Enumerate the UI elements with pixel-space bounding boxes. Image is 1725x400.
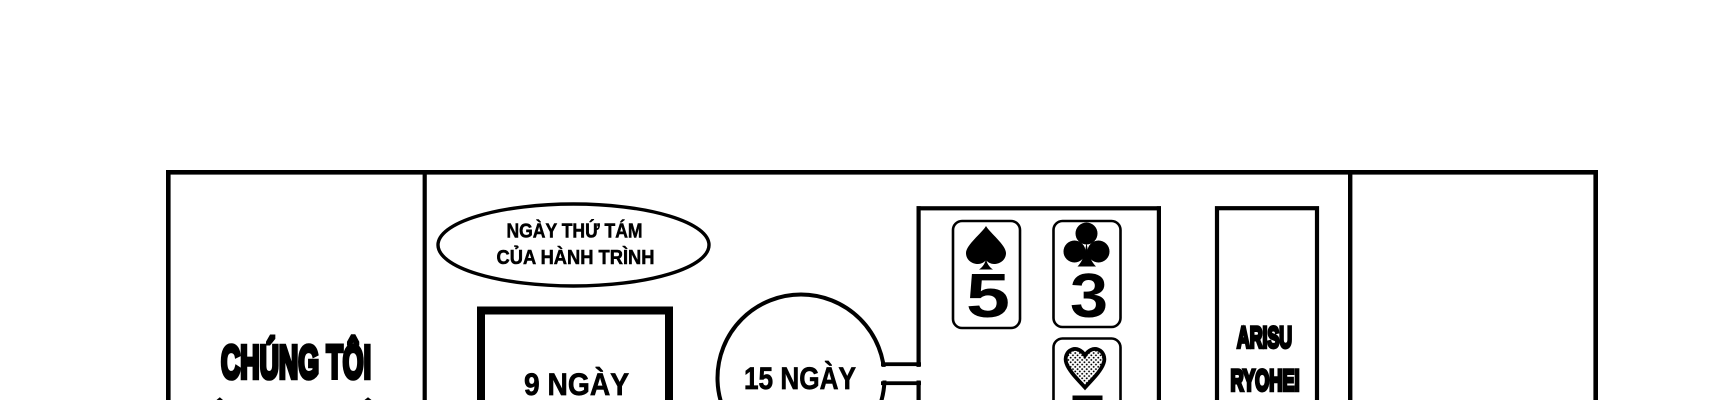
svg-text:ARISU: ARISU [1237,322,1292,355]
svg-text:9 NGÀY: 9 NGÀY [524,366,629,400]
svg-text:3: 3 [1070,262,1108,331]
svg-text:NGÀY THỨ TÁM: NGÀY THỨ TÁM [507,219,643,243]
svg-text:5: 5 [966,262,1010,331]
svg-text:15 NGÀY: 15 NGÀY [744,360,856,396]
svg-text:CỦA HÀNH TRÌNH: CỦA HÀNH TRÌNH [497,245,655,269]
svg-text:RYOHEI: RYOHEI [1231,365,1300,398]
svg-text:CHÚNG TÔI: CHÚNG TÔI [221,336,371,388]
